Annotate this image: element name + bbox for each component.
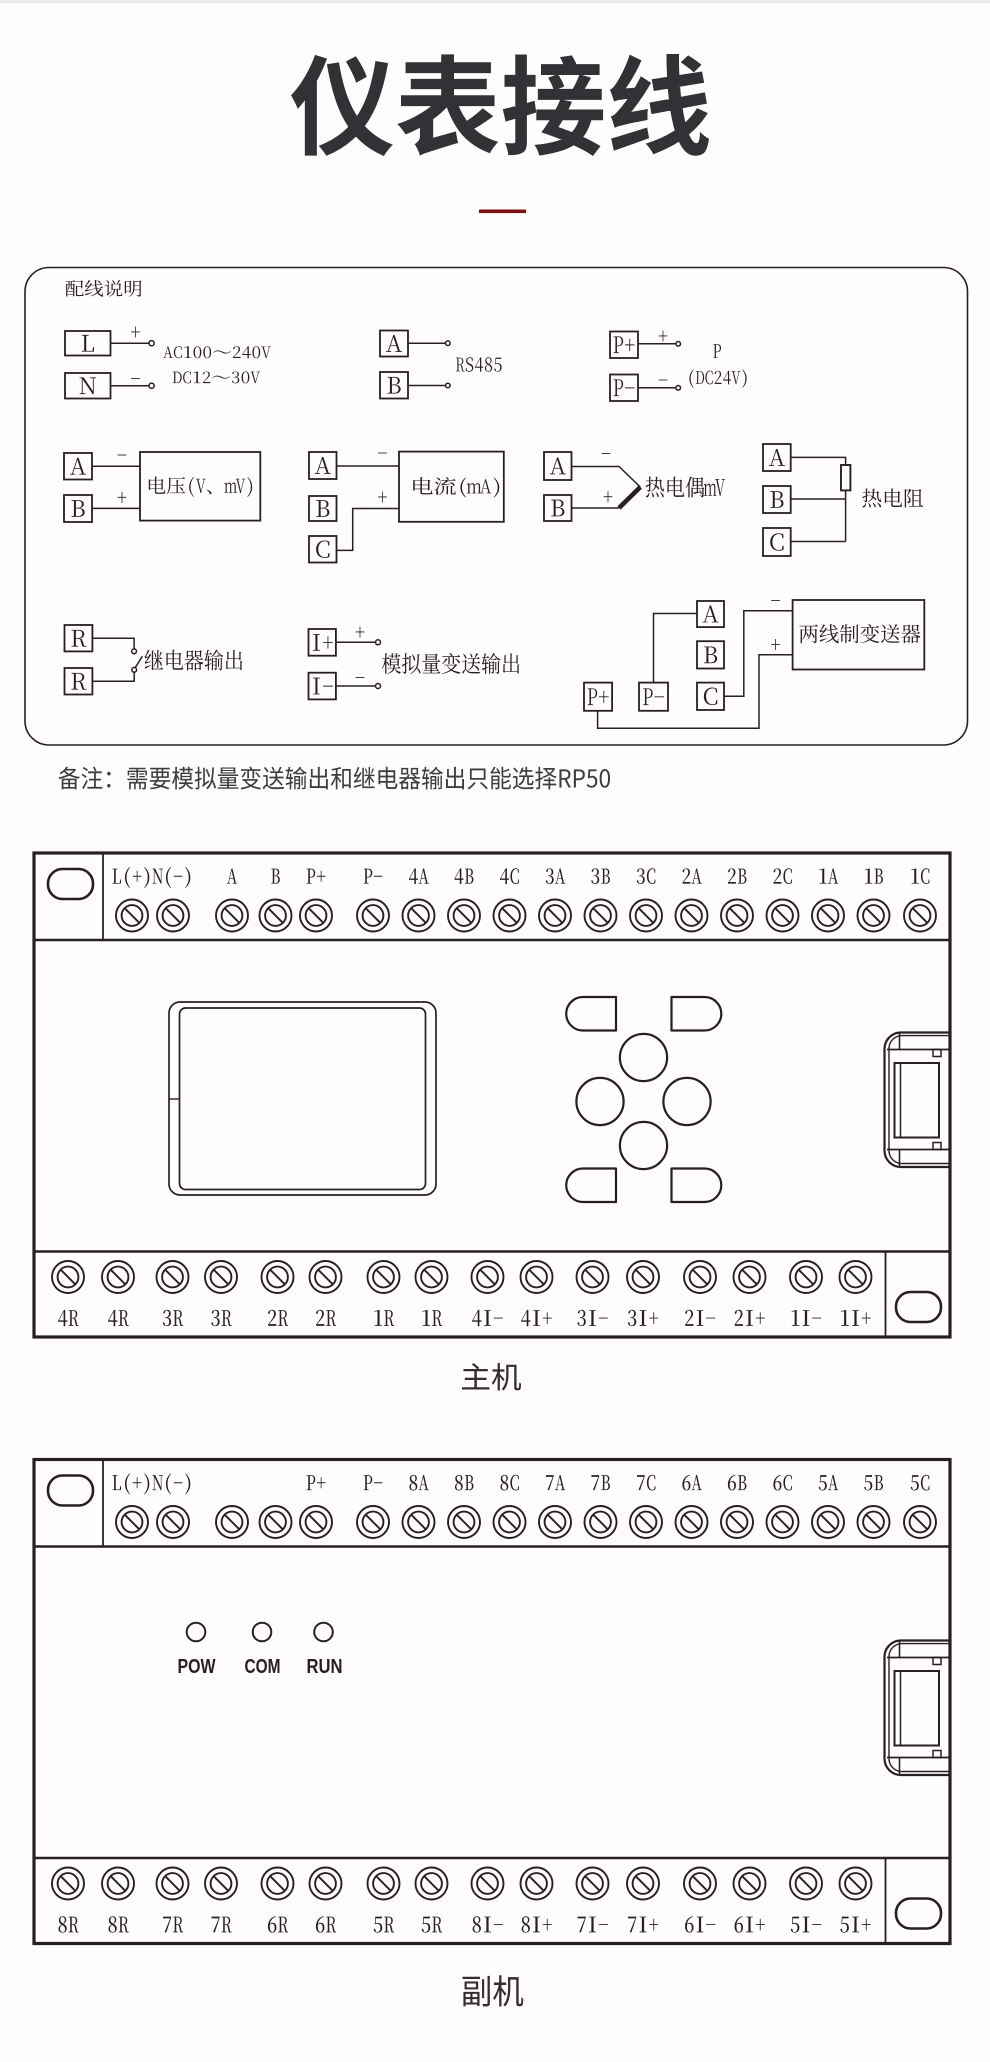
svg-text:COM: COM [245,1656,281,1678]
svg-text:POW: POW [178,1656,216,1678]
svg-text:RUN: RUN [307,1656,343,1678]
